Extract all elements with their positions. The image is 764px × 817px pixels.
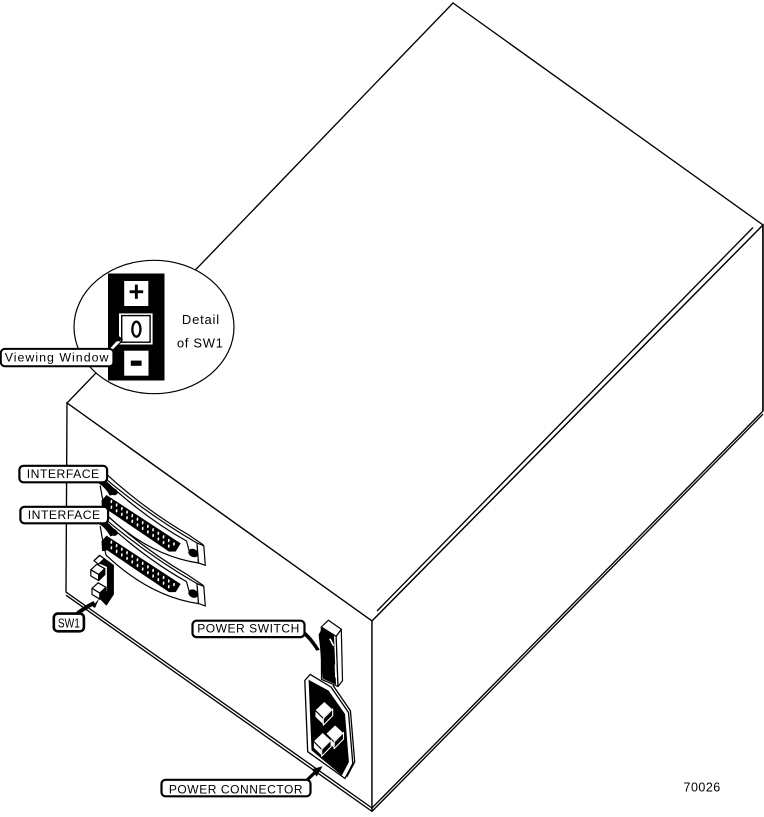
svg-text:SW1: SW1: [58, 616, 80, 631]
svg-text:70026: 70026: [684, 781, 721, 795]
svg-text:Detail: Detail: [182, 312, 220, 327]
svg-text:POWER CONNECTOR: POWER CONNECTOR: [169, 782, 303, 796]
svg-text:of SW1: of SW1: [177, 335, 224, 350]
svg-text:INTERFACE: INTERFACE: [28, 508, 101, 522]
svg-text:Viewing Window: Viewing Window: [5, 351, 110, 365]
svg-text:POWER SWITCH: POWER SWITCH: [197, 622, 300, 636]
svg-text:INTERFACE: INTERFACE: [27, 467, 100, 481]
